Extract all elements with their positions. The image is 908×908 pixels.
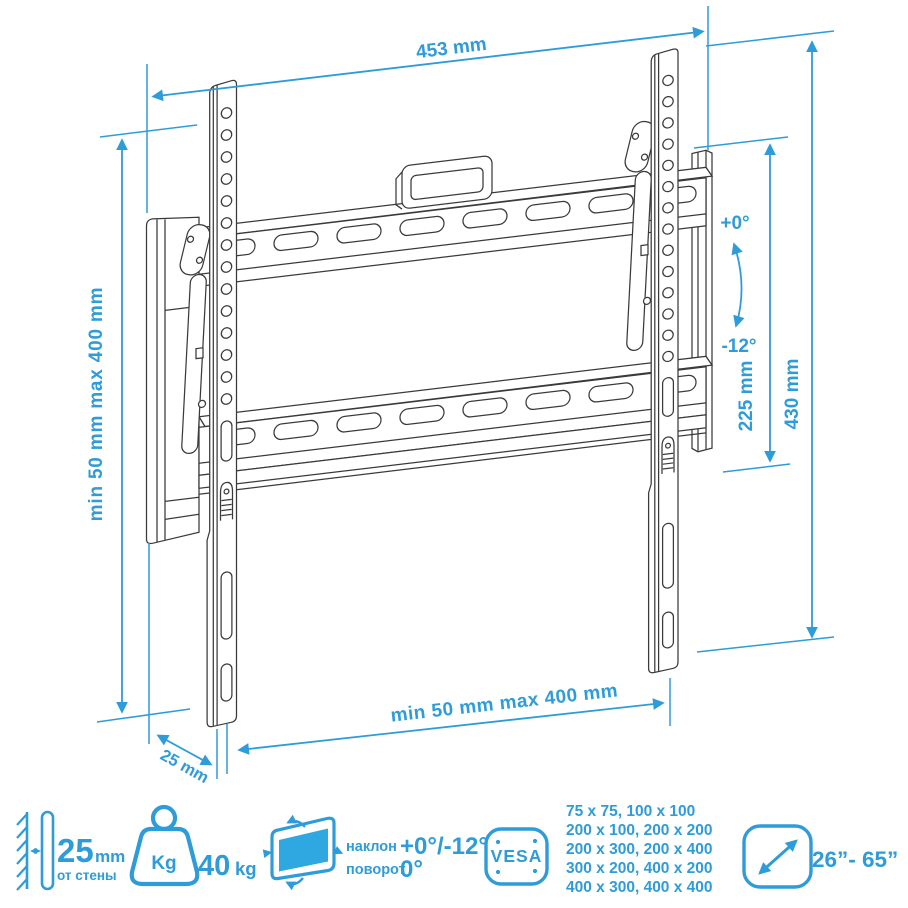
tilt-plus-label: +0° bbox=[720, 213, 749, 234]
depth-label: 25 mm bbox=[157, 746, 211, 787]
wall-distance-icon bbox=[17, 812, 53, 890]
extension-line bbox=[97, 709, 190, 722]
vesa-bracket-left bbox=[207, 80, 236, 727]
vesa-size-line: 300 x 200, 400 x 200 bbox=[566, 860, 713, 877]
weight-value: 40 bbox=[198, 850, 230, 882]
spec-icons-row: 25 mm от стены Kg 40 kg наклон +0°/- bbox=[17, 803, 898, 896]
wall-distance-spec: 25 mm от стены bbox=[17, 812, 125, 890]
wall-distance-value: 25 bbox=[57, 832, 94, 869]
outer-height-label: 430 mm bbox=[782, 359, 803, 430]
vesa-size-line: 200 x 100, 200 x 200 bbox=[566, 822, 713, 839]
wall-mount-drawing bbox=[147, 23, 713, 734]
tilt-range-arrow bbox=[734, 244, 742, 326]
tilt-spec: наклон +0°/-12° поворот 0° bbox=[265, 818, 488, 884]
bottom-rail bbox=[199, 356, 712, 495]
max-weight-spec: Kg 40 kg bbox=[132, 807, 257, 884]
left-range-label: min 50 mm max 400 mm bbox=[86, 287, 107, 522]
wall-mount-spec-sheet: 453 mm min 50 mm max 400 mm 225 mm 430 m… bbox=[0, 0, 908, 908]
tilt-row2-label: поворот bbox=[346, 862, 406, 878]
weight-badge: Kg bbox=[151, 853, 176, 874]
vesa-bracket-right bbox=[649, 49, 678, 674]
inner-height-label: 225 mm bbox=[736, 361, 757, 432]
vesa-size-line: 200 x 300, 200 x 400 bbox=[566, 841, 713, 858]
tilt-row2-value: 0° bbox=[400, 856, 423, 883]
tilt-screen-icon bbox=[265, 818, 342, 884]
vesa-size-line: 400 x 300, 400 x 400 bbox=[566, 879, 713, 896]
tilt-row1-label: наклон bbox=[346, 839, 397, 855]
extension-line bbox=[706, 31, 834, 46]
extension-line bbox=[100, 125, 197, 137]
tilt-minus-label: -12° bbox=[721, 336, 756, 357]
diagram-canvas: 453 mm min 50 mm max 400 mm 225 mm 430 m… bbox=[0, 0, 908, 908]
screen-size-value: 26”- 65” bbox=[812, 847, 898, 872]
vesa-size-list: 75 x 75, 100 x 100 200 x 100, 200 x 200 … bbox=[566, 803, 713, 896]
screen-size-spec: 26”- 65” bbox=[744, 826, 898, 887]
weight-unit: kg bbox=[235, 858, 257, 879]
extension-line bbox=[723, 464, 790, 472]
extension-line bbox=[697, 637, 834, 652]
wall-distance-caption: от стены bbox=[57, 868, 117, 883]
vesa-spec: VESA 75 x 75, 100 x 100 200 x 100, 200 x… bbox=[486, 803, 713, 896]
vesa-size-line: 75 x 75, 100 x 100 bbox=[566, 803, 695, 820]
vesa-badge: VESA bbox=[491, 846, 543, 866]
screen-diagonal-icon bbox=[744, 826, 811, 887]
wall-distance-unit: mm bbox=[95, 847, 125, 866]
